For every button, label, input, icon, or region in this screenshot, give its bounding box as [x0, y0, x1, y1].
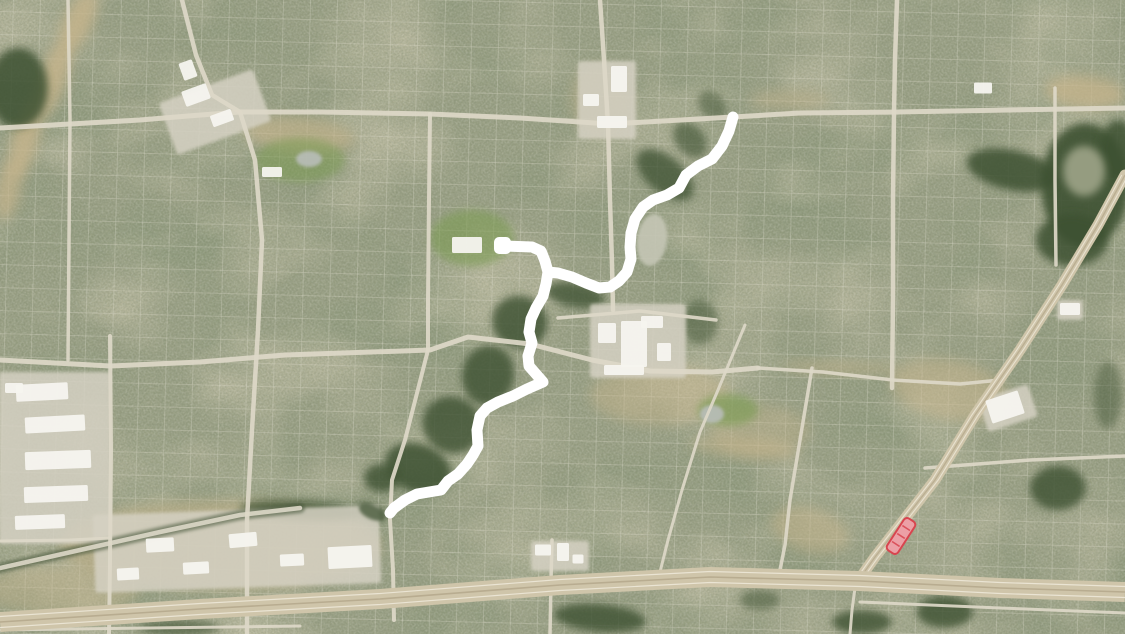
map-canvas[interactable]: [0, 0, 1125, 634]
building-roof: [24, 485, 89, 503]
forest-clearing: [1063, 146, 1105, 196]
building-roof: [280, 553, 305, 566]
building-roof: [228, 532, 257, 548]
forest-patch: [1094, 361, 1122, 429]
building-roof: [262, 167, 282, 177]
building-roof: [452, 237, 482, 253]
building-roof: [597, 116, 627, 128]
building-roof: [15, 514, 65, 530]
forest-patch: [1030, 466, 1086, 510]
road-vertical-west: [68, 0, 70, 360]
building-roof: [604, 365, 644, 375]
pond: [296, 151, 322, 167]
road-vertical-far-east: [1055, 88, 1056, 265]
satellite-map-view[interactable]: [0, 0, 1125, 634]
road-vertical-west-lower: [109, 336, 111, 634]
building-roof: [573, 555, 584, 564]
field-patch: [750, 90, 830, 110]
building-roof: [557, 543, 569, 561]
forest-patch: [832, 610, 892, 634]
building-roof: [16, 382, 69, 402]
building-roof: [611, 66, 627, 92]
building-roof: [535, 545, 551, 556]
forest-patch: [917, 596, 973, 628]
building-roof: [598, 323, 616, 343]
building-roof: [327, 545, 372, 569]
building-roof: [5, 383, 23, 393]
building-roof: [641, 316, 663, 328]
building-roof: [583, 94, 599, 106]
building-roof: [146, 537, 175, 552]
building-roof: [657, 343, 671, 361]
route-start-marker: [494, 237, 511, 254]
forest-patch: [740, 590, 780, 610]
terrain-clearings: [1063, 146, 1105, 196]
building-roof: [1060, 303, 1080, 315]
building-roof: [117, 567, 140, 580]
building-roof: [25, 414, 86, 433]
forest-patch: [682, 300, 718, 344]
building-roof: [25, 450, 92, 470]
building-roof: [183, 561, 210, 574]
building-roof: [974, 83, 992, 94]
